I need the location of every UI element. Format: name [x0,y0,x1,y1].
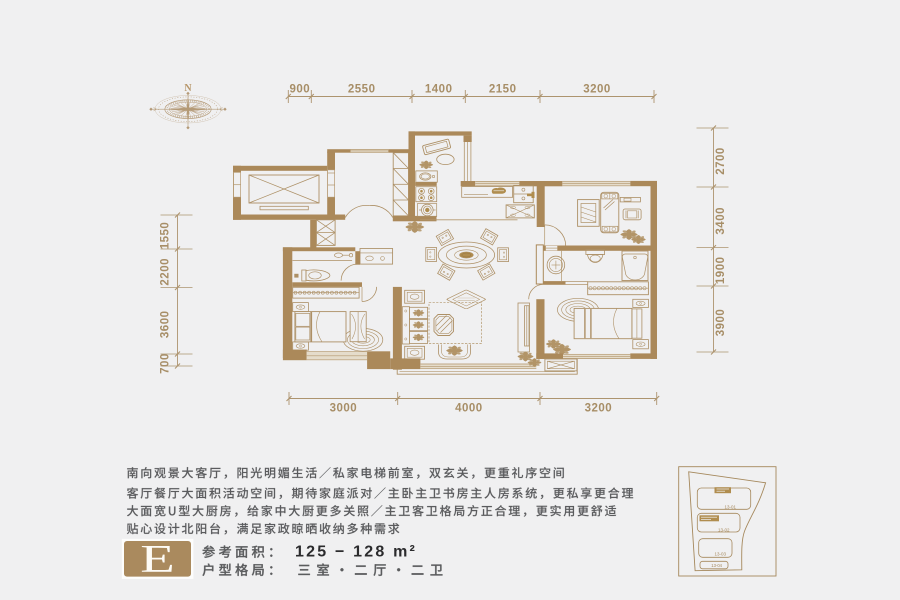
svg-text:13-03: 13-03 [714,552,726,557]
svg-text:4000: 4000 [455,403,483,415]
svg-text:2200: 2200 [160,258,172,286]
svg-text:2700: 2700 [715,147,727,175]
svg-text:3200: 3200 [583,83,611,95]
svg-text:N: N [184,83,192,94]
svg-text:3200: 3200 [585,403,613,415]
svg-text:13-01: 13-01 [724,505,736,510]
svg-text:700: 700 [160,353,172,374]
svg-text:900: 900 [289,83,310,95]
svg-text:1900: 1900 [715,257,727,285]
svg-text:3600: 3600 [160,311,172,339]
svg-text:3900: 3900 [715,309,727,337]
svg-text:125 − 128 m²: 125 − 128 m² [295,544,417,561]
svg-text:2550: 2550 [348,83,376,95]
svg-text:13-04: 13-04 [711,563,722,568]
svg-text:1550: 1550 [160,222,172,250]
svg-text:2150: 2150 [489,83,517,95]
svg-text:E: E [140,537,175,580]
svg-text:3000: 3000 [330,403,358,415]
svg-text:3400: 3400 [715,207,727,235]
svg-text:13-02: 13-02 [718,528,730,533]
svg-text:1400: 1400 [425,83,453,95]
